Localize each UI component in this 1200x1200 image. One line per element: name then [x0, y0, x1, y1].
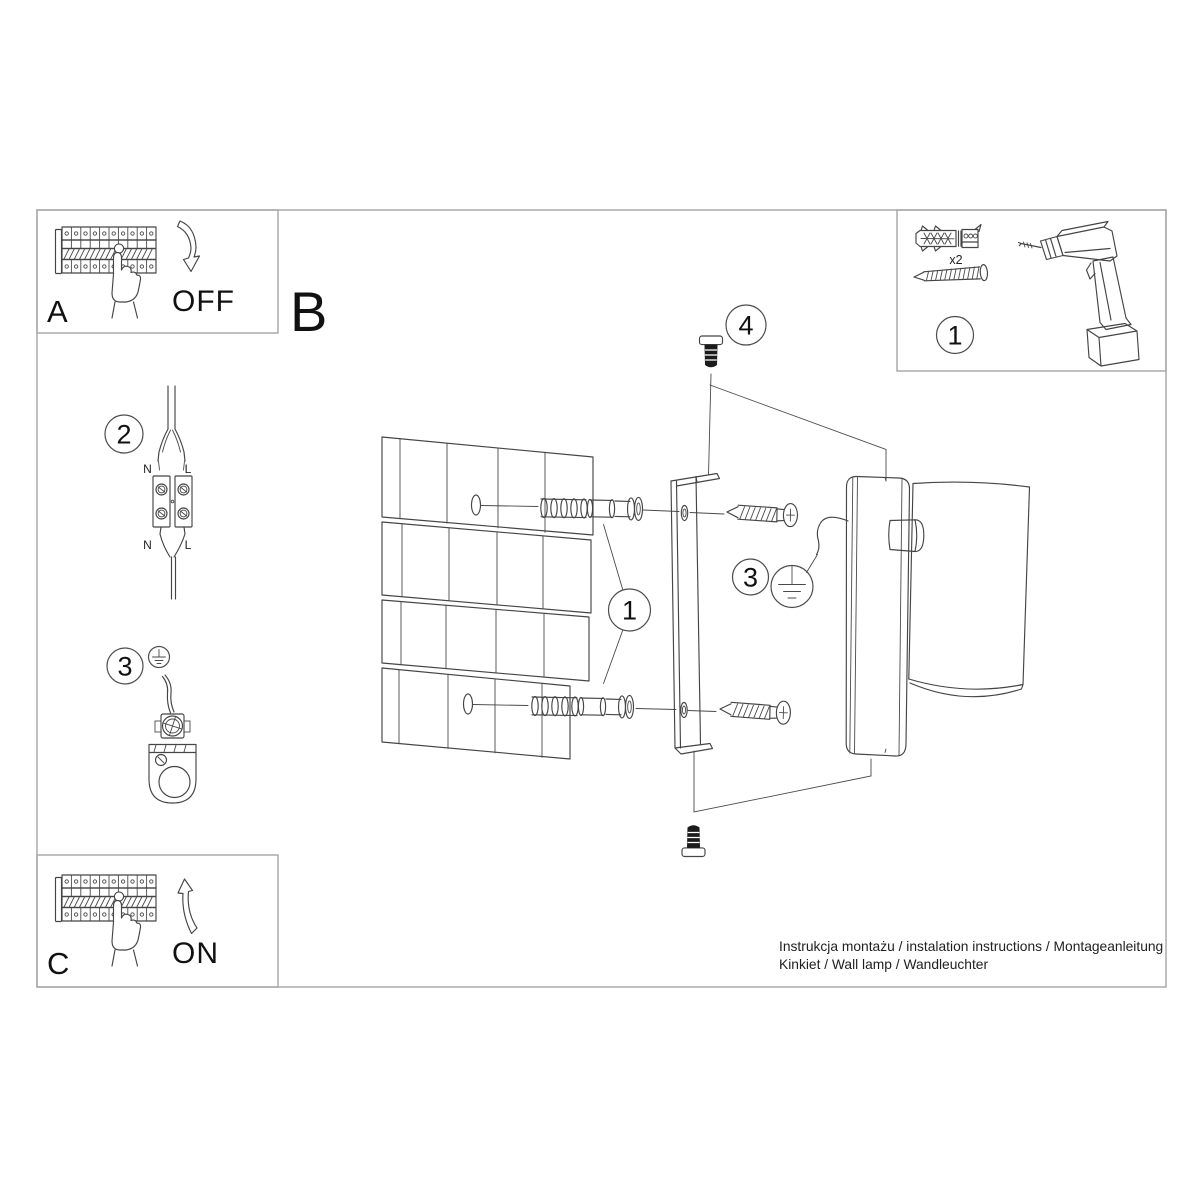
anchor-quantity-label: x2	[949, 253, 962, 267]
screw-callout-number: 4	[738, 311, 753, 341]
ground-terminal-diagram: 3	[107, 647, 196, 804]
off-label: OFF	[172, 285, 235, 318]
arrow-up-icon	[178, 879, 197, 934]
on-label: ON	[172, 937, 219, 970]
drill-hole-bottom	[464, 694, 473, 714]
tools-callout-number: 1	[947, 321, 962, 351]
wire-l-top-label: L	[185, 462, 192, 476]
lamp-bracket-rear	[149, 745, 196, 804]
section-c-power-on: C ON	[47, 875, 219, 981]
wall-anchor-icon	[916, 225, 981, 252]
lamp-pivot	[889, 520, 924, 552]
terminal-screws	[156, 484, 189, 519]
tools-box-frame	[897, 210, 1166, 371]
wire-n-top-label: N	[143, 462, 152, 476]
drill-hole-top	[472, 495, 481, 515]
section-c-label: C	[47, 946, 69, 981]
drill-icon	[1019, 222, 1140, 367]
lamp-backplate	[846, 476, 909, 756]
breaker-panel-icon	[56, 875, 157, 966]
fixing-screw-top	[700, 336, 723, 367]
mounting-screw-top	[727, 503, 798, 527]
section-a-label: A	[47, 294, 68, 329]
wiring-diagram: 2 N L N L	[105, 386, 192, 599]
section-b-frame	[37, 210, 1166, 987]
footer-line-2: Kinkiet / Wall lamp / Wandleuchter	[779, 957, 988, 972]
bottom-screw-assembly	[682, 751, 871, 857]
mounting-bracket	[671, 474, 720, 755]
anchors-callout-number: 1	[622, 596, 637, 626]
earth-symbol-icon	[149, 647, 170, 668]
footer-text: Instrukcja montażu / instalation instruc…	[779, 939, 1163, 972]
tiled-wall	[382, 437, 593, 759]
installation-diagram: A OFF C ON x2 1	[0, 0, 1200, 1200]
arrow-down-icon	[178, 221, 200, 272]
wall-anchor-bottom	[532, 695, 634, 718]
footer-line-1: Instrukcja montażu / instalation instruc…	[779, 939, 1163, 954]
section-b-label: B	[290, 280, 327, 343]
wire-n-bottom-label: N	[143, 538, 152, 552]
mounting-screw-bottom	[720, 700, 791, 725]
tools-box: x2 1	[913, 222, 1139, 367]
breaker-panel-icon	[56, 227, 157, 318]
section-a-power-off: A OFF	[47, 221, 235, 329]
lamp-head	[909, 482, 1030, 697]
section-a-frame	[37, 210, 278, 333]
wall-anchor-top	[541, 497, 643, 520]
ground-callout-number: 3	[117, 652, 132, 682]
fixing-screw-bottom	[682, 825, 705, 856]
wiring-callout-number: 2	[116, 420, 131, 450]
instruction-sheet: A OFF C ON x2 1	[0, 0, 1200, 1200]
top-screw-callout: 4	[700, 305, 887, 481]
exploded-view: 1 3	[382, 305, 1030, 857]
earth-callout-number: 3	[743, 563, 758, 593]
wire-l-bottom-label: L	[185, 538, 192, 552]
page-frames	[37, 210, 1166, 987]
screw-icon	[913, 264, 988, 285]
earth-callout: 3	[733, 517, 849, 607]
